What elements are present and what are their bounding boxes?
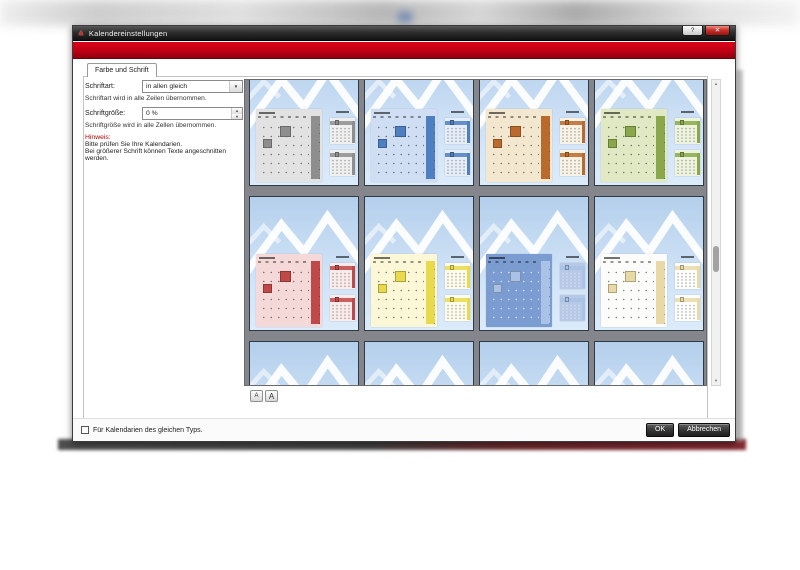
highlighted-day-cell (510, 126, 521, 137)
highlighted-day-cell (625, 271, 636, 282)
month-title-text (259, 112, 275, 114)
week-number-column (426, 116, 435, 179)
vertical-scrollbar[interactable]: ▲ ▼ (711, 79, 721, 386)
highlighted-day-cell (608, 139, 617, 148)
month-title-text (374, 112, 390, 114)
mini-month-next (675, 150, 700, 176)
mini-accent-column (582, 266, 585, 288)
mini-day-grid (331, 272, 351, 288)
tab-farbe-und-schrift[interactable]: Farbe und Schrift (87, 63, 157, 77)
year-label-text (566, 256, 579, 258)
mini-day-grid (446, 127, 466, 143)
mountain-placeholder-image (595, 342, 703, 386)
mini-month-previous (330, 118, 355, 144)
highlighted-day-cell (493, 139, 502, 148)
scrollbar-thumb[interactable] (713, 246, 719, 272)
month-title-text (604, 257, 620, 259)
mountain-placeholder-image (365, 342, 473, 386)
same-type-checkbox[interactable] (81, 426, 89, 434)
calendar-preview-viewport (244, 79, 707, 386)
mini-accent-column (582, 298, 585, 320)
month-title-text (259, 257, 275, 259)
weekday-header-row (258, 116, 309, 118)
mini-month-next (330, 150, 355, 176)
ok-button[interactable]: OK (646, 423, 674, 437)
note-title: Hinweis: (85, 134, 243, 141)
mini-accent-column (352, 153, 355, 175)
week-number-column (311, 261, 320, 324)
spin-down-icon[interactable]: ▼ (231, 114, 242, 120)
main-month-panel (601, 109, 667, 182)
highlighted-day-cell (280, 271, 291, 282)
backdrop-right-edge (736, 70, 743, 442)
year-label-text (336, 256, 349, 258)
mini-highlight-cell (335, 265, 339, 270)
mini-accent-column (352, 121, 355, 143)
close-icon[interactable]: ✕ (705, 26, 730, 36)
calendar-thumbnail-gray[interactable] (249, 79, 359, 186)
mini-month-previous (675, 118, 700, 144)
highlighted-day-cell (625, 126, 636, 137)
year-label-text (451, 111, 464, 113)
help-icon[interactable]: ? (682, 26, 703, 36)
mini-day-grid (446, 272, 466, 288)
year-label-text (336, 111, 349, 113)
mini-accent-column (697, 121, 700, 143)
mini-month-previous (330, 263, 355, 289)
mini-day-grid (331, 159, 351, 175)
font-size-stepper[interactable]: 0 % ▲ ▼ (142, 107, 243, 120)
calendar-thumbnail-dark-blue[interactable] (479, 196, 589, 331)
weekday-header-row (258, 261, 309, 263)
weekday-header-row (488, 261, 539, 263)
month-title-text (489, 112, 505, 114)
highlighted-day-cell (608, 284, 617, 293)
year-label-text (451, 256, 464, 258)
week-number-column (656, 261, 665, 324)
main-month-panel (486, 254, 552, 327)
backdrop-blue-blur (398, 12, 412, 22)
month-title-text (604, 112, 620, 114)
mini-highlight-cell (335, 152, 339, 157)
calendar-thumbnail-cropped-2[interactable] (364, 341, 474, 386)
mini-highlight-cell (335, 120, 339, 125)
mini-month-previous (675, 263, 700, 289)
weekday-header-row (603, 261, 654, 263)
weekday-header-row (488, 116, 539, 118)
year-label-text (681, 111, 694, 113)
mini-month-next (560, 150, 585, 176)
mini-month-previous (445, 263, 470, 289)
weekday-header-row (373, 261, 424, 263)
font-size-label: Schriftgröße: (85, 110, 142, 117)
mini-day-grid (561, 159, 581, 175)
week-number-column (311, 116, 320, 179)
mini-highlight-cell (450, 265, 454, 270)
mini-day-grid (446, 304, 466, 320)
mini-accent-column (697, 266, 700, 288)
week-number-column (426, 261, 435, 324)
font-size-value: 0 % (146, 110, 158, 117)
main-month-panel (371, 254, 437, 327)
main-month-panel (601, 254, 667, 327)
mini-highlight-cell (565, 265, 569, 270)
font-family-select[interactable]: in allen gleich ▼ (142, 80, 243, 93)
highlighted-day-cell (493, 284, 502, 293)
mini-day-grid (446, 159, 466, 175)
mini-accent-column (582, 153, 585, 175)
highlighted-day-cell (510, 271, 521, 282)
week-number-column (541, 261, 550, 324)
main-month-panel (371, 109, 437, 182)
weekday-header-row (373, 116, 424, 118)
calendar-thumbnail-green[interactable] (594, 79, 704, 186)
dialog-footer: Für Kalendarien des gleichen Typs. OK Ab… (73, 418, 735, 441)
mini-accent-column (467, 121, 470, 143)
highlighted-day-cell (395, 126, 406, 137)
year-label-text (681, 256, 694, 258)
highlighted-day-cell (263, 139, 272, 148)
mini-month-next (445, 150, 470, 176)
mini-month-next (330, 295, 355, 321)
mini-day-grid (561, 127, 581, 143)
cancel-button[interactable]: Abbrechen (678, 423, 730, 437)
mini-month-next (675, 295, 700, 321)
font-settings-form: Schriftart: in allen gleich ▼ Schriftart… (85, 80, 243, 162)
calendar-thumbnail-cropped-4[interactable] (594, 341, 704, 386)
mini-accent-column (697, 298, 700, 320)
calendar-settings-dialog: ▲ Kalendereinstellungen ? ✕ Farbe und Sc… (72, 25, 736, 442)
app-logo-icon: ▲ (77, 29, 85, 37)
mini-month-previous (560, 263, 585, 289)
mini-day-grid (676, 304, 696, 320)
mini-accent-column (697, 153, 700, 175)
mini-day-grid (676, 159, 696, 175)
calendar-thumbnail-yellow[interactable] (364, 196, 474, 331)
chevron-down-icon[interactable]: ▼ (229, 81, 242, 92)
main-month-panel (486, 109, 552, 182)
font-family-label: Schriftart: (85, 83, 142, 90)
calendar-thumbnail-orange[interactable] (479, 79, 589, 186)
mini-accent-column (467, 153, 470, 175)
font-preview-large-button[interactable]: A (265, 390, 278, 402)
year-label-text (566, 111, 579, 113)
mini-highlight-cell (680, 120, 684, 125)
mini-month-previous (560, 118, 585, 144)
scroll-up-icon[interactable]: ▲ (712, 80, 720, 88)
mountain-placeholder-image (480, 342, 588, 386)
font-preview-small-button[interactable]: A (250, 390, 263, 402)
mini-accent-column (582, 121, 585, 143)
month-title-text (374, 257, 390, 259)
mini-highlight-cell (565, 152, 569, 157)
highlighted-day-cell (378, 139, 387, 148)
mountain-placeholder-image (250, 342, 358, 386)
highlighted-day-cell (395, 271, 406, 282)
mini-highlight-cell (680, 297, 684, 302)
red-brand-banner (73, 42, 735, 59)
mini-highlight-cell (565, 297, 569, 302)
mini-accent-column (467, 266, 470, 288)
mini-highlight-cell (450, 152, 454, 157)
weekday-header-row (603, 116, 654, 118)
font-family-caption: Schriftart wird in alle Zeilen übernomme… (85, 95, 243, 102)
window-title: Kalendereinstellungen (89, 29, 167, 38)
backdrop-top-blur (0, 0, 800, 26)
thumbnail-grid-inner (245, 79, 706, 386)
calendar-thumbnail-cropped-1[interactable] (249, 341, 359, 386)
font-family-value: in allen gleich (146, 83, 187, 90)
mini-accent-column (352, 266, 355, 288)
calendar-thumbnail-blue[interactable] (364, 79, 474, 186)
calendar-thumbnail-cropped-3[interactable] (479, 341, 589, 386)
mini-highlight-cell (450, 297, 454, 302)
highlighted-day-cell (263, 284, 272, 293)
mini-highlight-cell (680, 152, 684, 157)
highlighted-day-cell (280, 126, 291, 137)
month-title-text (489, 257, 505, 259)
mini-month-next (560, 295, 585, 321)
same-type-checkbox-label: Für Kalendarien des gleichen Typs. (93, 427, 203, 434)
mini-month-previous (445, 118, 470, 144)
calendar-thumbnail-white[interactable] (594, 196, 704, 331)
mini-accent-column (467, 298, 470, 320)
font-size-caption: Schriftgröße wird in alle Zellen übernom… (85, 122, 243, 129)
main-month-panel (256, 254, 322, 327)
mini-month-next (445, 295, 470, 321)
week-number-column (656, 116, 665, 179)
note-line-1: Bitte prüfen Sie Ihre Kalendarien. (85, 141, 243, 148)
mini-day-grid (331, 127, 351, 143)
mini-highlight-cell (565, 120, 569, 125)
mini-day-grid (561, 272, 581, 288)
week-number-column (541, 116, 550, 179)
mini-highlight-cell (335, 297, 339, 302)
mini-day-grid (676, 127, 696, 143)
mini-highlight-cell (680, 265, 684, 270)
calendar-thumbnail-red[interactable] (249, 196, 359, 331)
note-line-2: Bei größerer Schrift können Texte angesc… (85, 148, 243, 162)
mini-day-grid (331, 304, 351, 320)
main-month-panel (256, 109, 322, 182)
title-bar[interactable]: ▲ Kalendereinstellungen ? ✕ (73, 26, 735, 41)
mini-accent-column (352, 298, 355, 320)
mini-day-grid (561, 304, 581, 320)
scroll-down-icon[interactable]: ▼ (712, 377, 720, 385)
mini-highlight-cell (450, 120, 454, 125)
mini-day-grid (676, 272, 696, 288)
highlighted-day-cell (378, 284, 387, 293)
